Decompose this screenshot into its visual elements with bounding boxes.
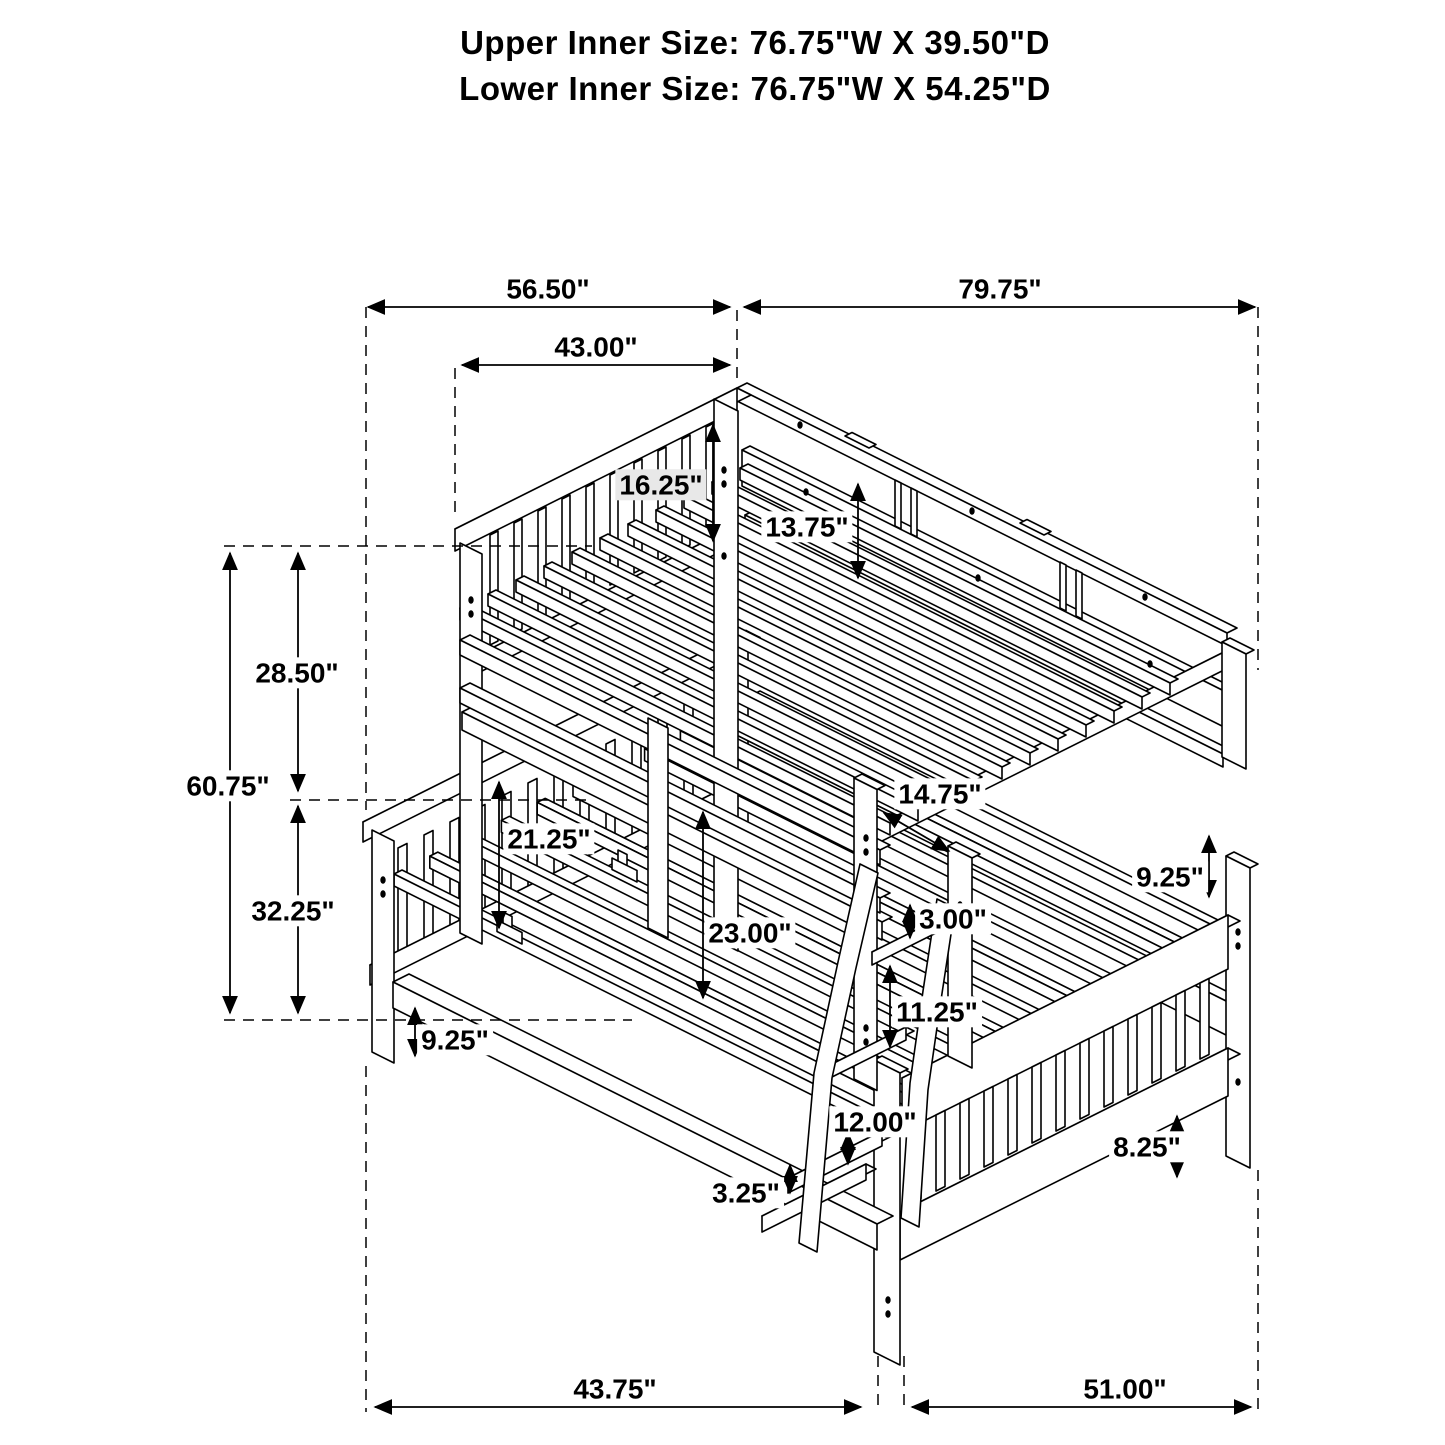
dim-bottom-left-span: 43.75" (569, 1373, 660, 1404)
bunk-bed-dimension-diagram: Upper Inner Size: 76.75"W X 39.50"D Lowe… (0, 0, 1445, 1445)
bed-line-drawing (0, 0, 1445, 1445)
dim-lower-side-rail-height: 9.25" (1132, 861, 1208, 892)
dim-upper-section-height: 28.50" (251, 657, 342, 688)
upper-inner-size-title: Upper Inner Size: 76.75"W X 39.50"D (460, 24, 1050, 62)
dim-ladder-step-spacing: 11.25" (892, 996, 982, 1027)
dim-upper-side-rail-height: 13.75" (761, 511, 852, 542)
dim-lower-headboard-above-deck: 21.25" (503, 823, 594, 854)
dim-bottom-right-span: 51.00" (1079, 1373, 1170, 1404)
dim-top-right-span: 79.75" (954, 273, 1045, 304)
dim-bunk-gap-diagonal: 14.75" (894, 778, 985, 809)
dim-ladder-foot-height: 3.25" (708, 1177, 784, 1208)
dim-ladder-lower-step-spacing: 12.00" (829, 1106, 920, 1137)
dim-deck-to-deck-height: 23.00" (704, 917, 795, 948)
dim-lower-deck-height: 9.25" (417, 1024, 493, 1055)
dim-overall-height: 60.75" (182, 770, 273, 801)
dim-upper-headboard-width: 43.00" (550, 331, 641, 362)
dim-footboard-bottom-rail-height: 8.25" (1109, 1131, 1185, 1162)
dim-lower-section-height: 32.25" (247, 895, 338, 926)
dim-top-left-span: 56.50" (502, 273, 593, 304)
dim-ladder-first-step-offset: 3.00" (915, 903, 991, 934)
dim-upper-headboard-rail-height: 16.25" (615, 469, 706, 500)
lower-inner-size-title: Lower Inner Size: 76.75"W X 54.25"D (459, 70, 1051, 108)
